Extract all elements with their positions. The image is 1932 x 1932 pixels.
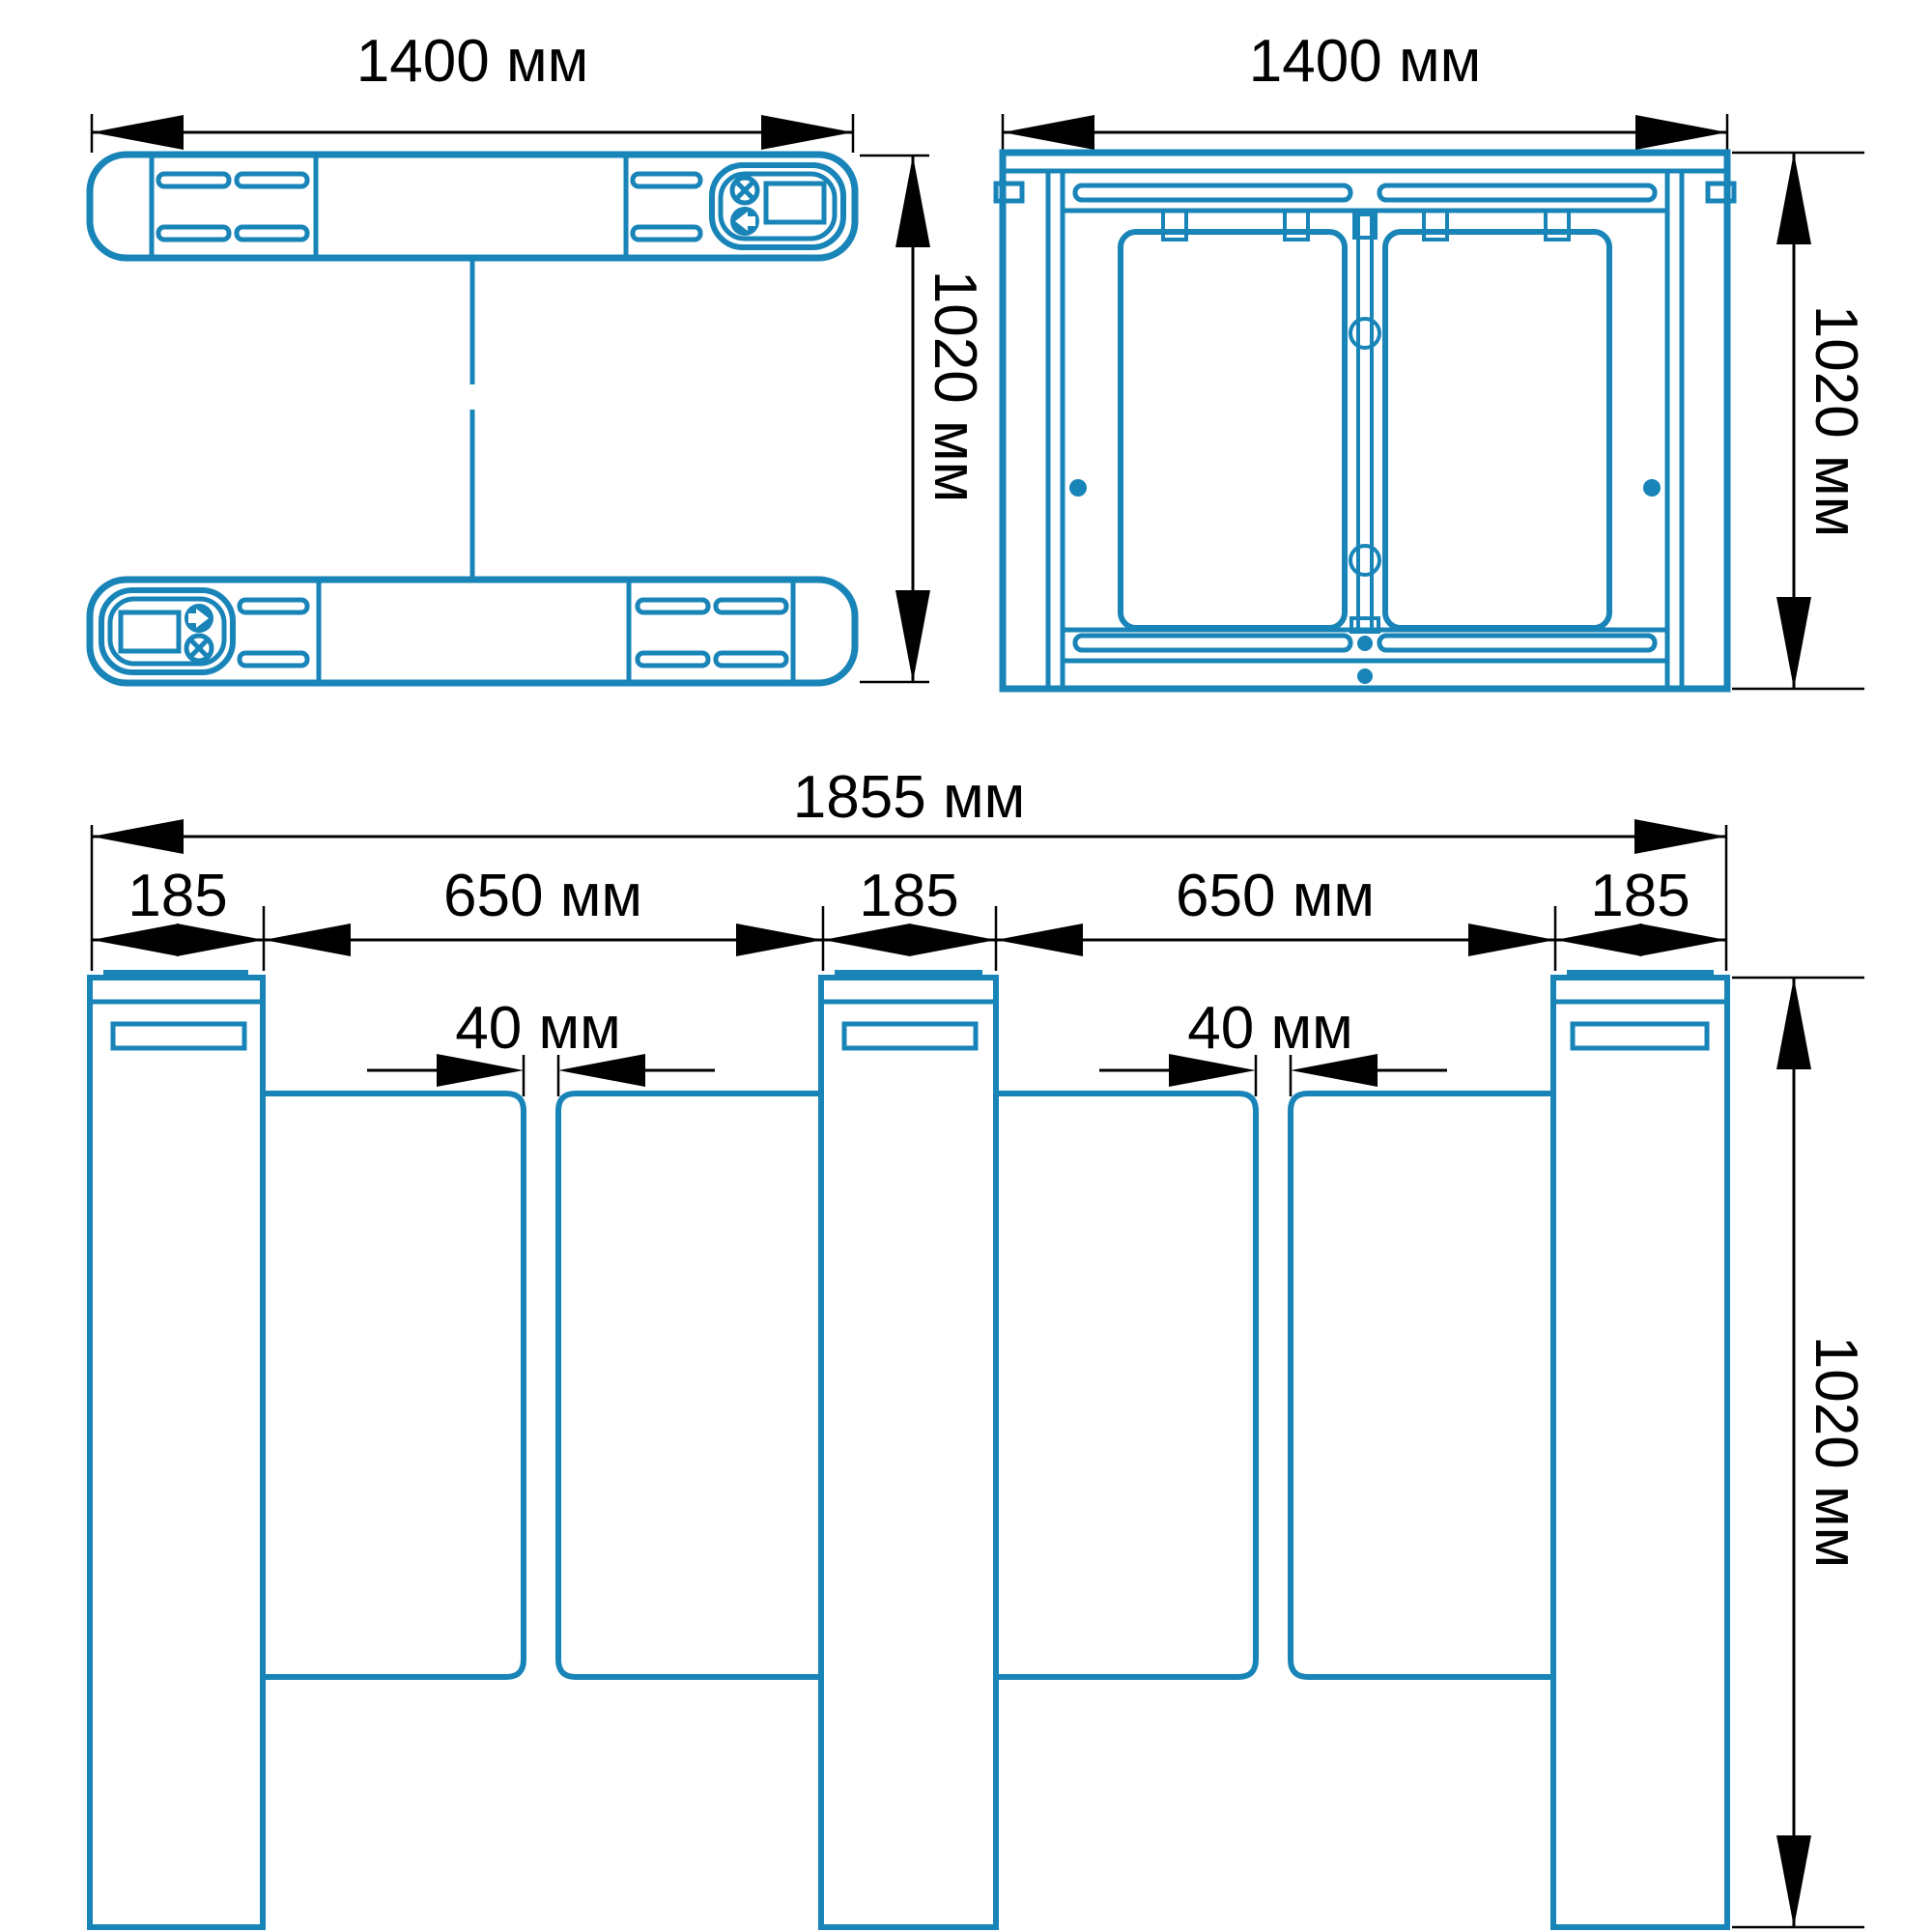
vent-slot xyxy=(716,653,786,666)
card-reader-slot xyxy=(844,1024,976,1048)
arrowhead-right-icon xyxy=(1635,115,1727,150)
plan-bottom-cabinet xyxy=(90,580,855,683)
vent-slot xyxy=(638,653,708,666)
dim-label-front-width: 1400 мм xyxy=(1249,28,1481,95)
pedestal-1 xyxy=(90,970,263,1927)
bottom-rail-slot xyxy=(1075,636,1350,650)
glass-wings xyxy=(263,1094,1553,1677)
dim-label-gap: 40 мм xyxy=(455,995,620,1062)
elevation-height-dimension: 1020 мм xyxy=(1732,978,1869,1927)
glass-clip xyxy=(1163,211,1186,240)
arrowhead-icon xyxy=(264,923,351,956)
turnstile-technical-drawing: 1400 мм xyxy=(0,0,1932,1932)
dim-label-pedestal: 185 xyxy=(128,863,227,929)
glass-clip xyxy=(1424,211,1447,240)
dim-label-pedestal: 185 xyxy=(859,863,958,929)
dim-label-elevation-height: 1020 мм xyxy=(1803,1336,1869,1568)
vent-slot xyxy=(716,600,786,612)
arrowhead-icon xyxy=(736,923,823,956)
vent-slot xyxy=(638,600,708,612)
body-outline xyxy=(1003,153,1727,689)
screw-dot xyxy=(1357,636,1373,651)
dim-label-gap: 40 мм xyxy=(1187,995,1352,1062)
glass-wing xyxy=(996,1094,1256,1677)
reader-display-window xyxy=(766,184,824,222)
vent-slot xyxy=(240,653,307,666)
vent-slot xyxy=(158,174,229,186)
vent-slot xyxy=(158,227,229,240)
elevation-segment-dimensions: 185 650 мм 185 650 мм 185 xyxy=(92,863,1726,971)
arrowhead-up-icon xyxy=(895,156,930,247)
plan-view: 1400 мм xyxy=(90,28,988,683)
arrowhead-down-icon xyxy=(1776,1835,1811,1927)
dim-label-plan-width: 1400 мм xyxy=(356,28,588,95)
arrowhead-up-icon xyxy=(1776,978,1811,1069)
dim-label-total-width: 1855 мм xyxy=(793,764,1025,831)
vent-slot xyxy=(237,227,307,240)
top-rail-slot xyxy=(1075,185,1350,200)
vent-slot xyxy=(237,174,307,186)
reader-display-window xyxy=(121,612,179,651)
arrowhead-right-icon xyxy=(761,115,853,150)
dim-label-pedestal: 185 xyxy=(1590,863,1690,929)
pedestal-2 xyxy=(821,970,996,1927)
pedestal-3 xyxy=(1553,970,1727,1927)
elevation-view: 1855 мм 185 650 мм 185 650 мм 185 xyxy=(90,764,1869,1927)
screw-dot xyxy=(1357,668,1373,684)
dim-label-lane: 650 мм xyxy=(1176,863,1375,929)
bottom-rail-slot xyxy=(1379,636,1655,650)
reader-panel xyxy=(101,590,233,672)
plan-width-dimension: 1400 мм xyxy=(92,28,853,153)
screw-dot xyxy=(1069,479,1087,497)
pedestal-body xyxy=(821,978,996,1927)
dim-label-plan-depth: 1020 мм xyxy=(922,270,988,502)
plan-top-cabinet xyxy=(90,155,855,258)
card-reader-slot xyxy=(113,1024,244,1048)
dim-label-lane: 650 мм xyxy=(443,863,642,929)
screw-dot xyxy=(1643,479,1661,497)
gap-dimension-2: 40 мм xyxy=(1099,995,1447,1096)
arrowhead-left-icon xyxy=(92,115,184,150)
arrowhead-left-icon xyxy=(92,819,184,854)
no-entry-icon xyxy=(732,178,757,203)
top-rail-slot xyxy=(1379,185,1655,200)
vent-slot xyxy=(633,174,700,186)
arrowhead-up-icon xyxy=(1776,153,1811,244)
glass-clip xyxy=(1546,211,1569,240)
arrowhead-down-icon xyxy=(1776,597,1811,689)
vent-slot xyxy=(240,600,307,612)
front-gate-body xyxy=(996,153,1734,689)
dim-label-front-height: 1020 мм xyxy=(1803,305,1869,537)
glass-clip xyxy=(1285,211,1308,240)
arrowhead-left-icon xyxy=(1003,115,1094,150)
pedestal-body xyxy=(90,978,263,1927)
plan-depth-dimension: 1020 мм xyxy=(860,156,988,682)
glass-panel xyxy=(1385,232,1609,628)
hinge-circle xyxy=(1350,319,1379,348)
vent-slot xyxy=(633,227,700,240)
card-reader-slot xyxy=(1573,1024,1707,1048)
front-view: 1400 мм xyxy=(996,28,1869,689)
front-height-dimension: 1020 мм xyxy=(1732,153,1869,689)
arrowhead-down-icon xyxy=(895,590,930,682)
arrowhead-icon xyxy=(996,923,1083,956)
arrowhead-icon xyxy=(1468,923,1555,956)
gap-dimension-1: 40 мм xyxy=(367,995,715,1096)
no-entry-icon xyxy=(186,636,212,661)
center-hinge-post xyxy=(1350,214,1379,632)
entry-arrow-icon xyxy=(185,604,213,633)
front-width-dimension: 1400 мм xyxy=(1003,28,1727,151)
cabinet-outline xyxy=(90,155,855,258)
glass-wing xyxy=(558,1094,821,1677)
pedestal-body xyxy=(1553,978,1727,1927)
glass-panel xyxy=(1121,232,1345,628)
entry-arrow-icon xyxy=(730,207,759,236)
glass-wing xyxy=(263,1094,524,1677)
hinge-circle xyxy=(1350,546,1379,575)
glass-wing xyxy=(1291,1094,1553,1677)
arrowhead-right-icon xyxy=(1634,819,1726,854)
reader-panel xyxy=(712,165,843,247)
